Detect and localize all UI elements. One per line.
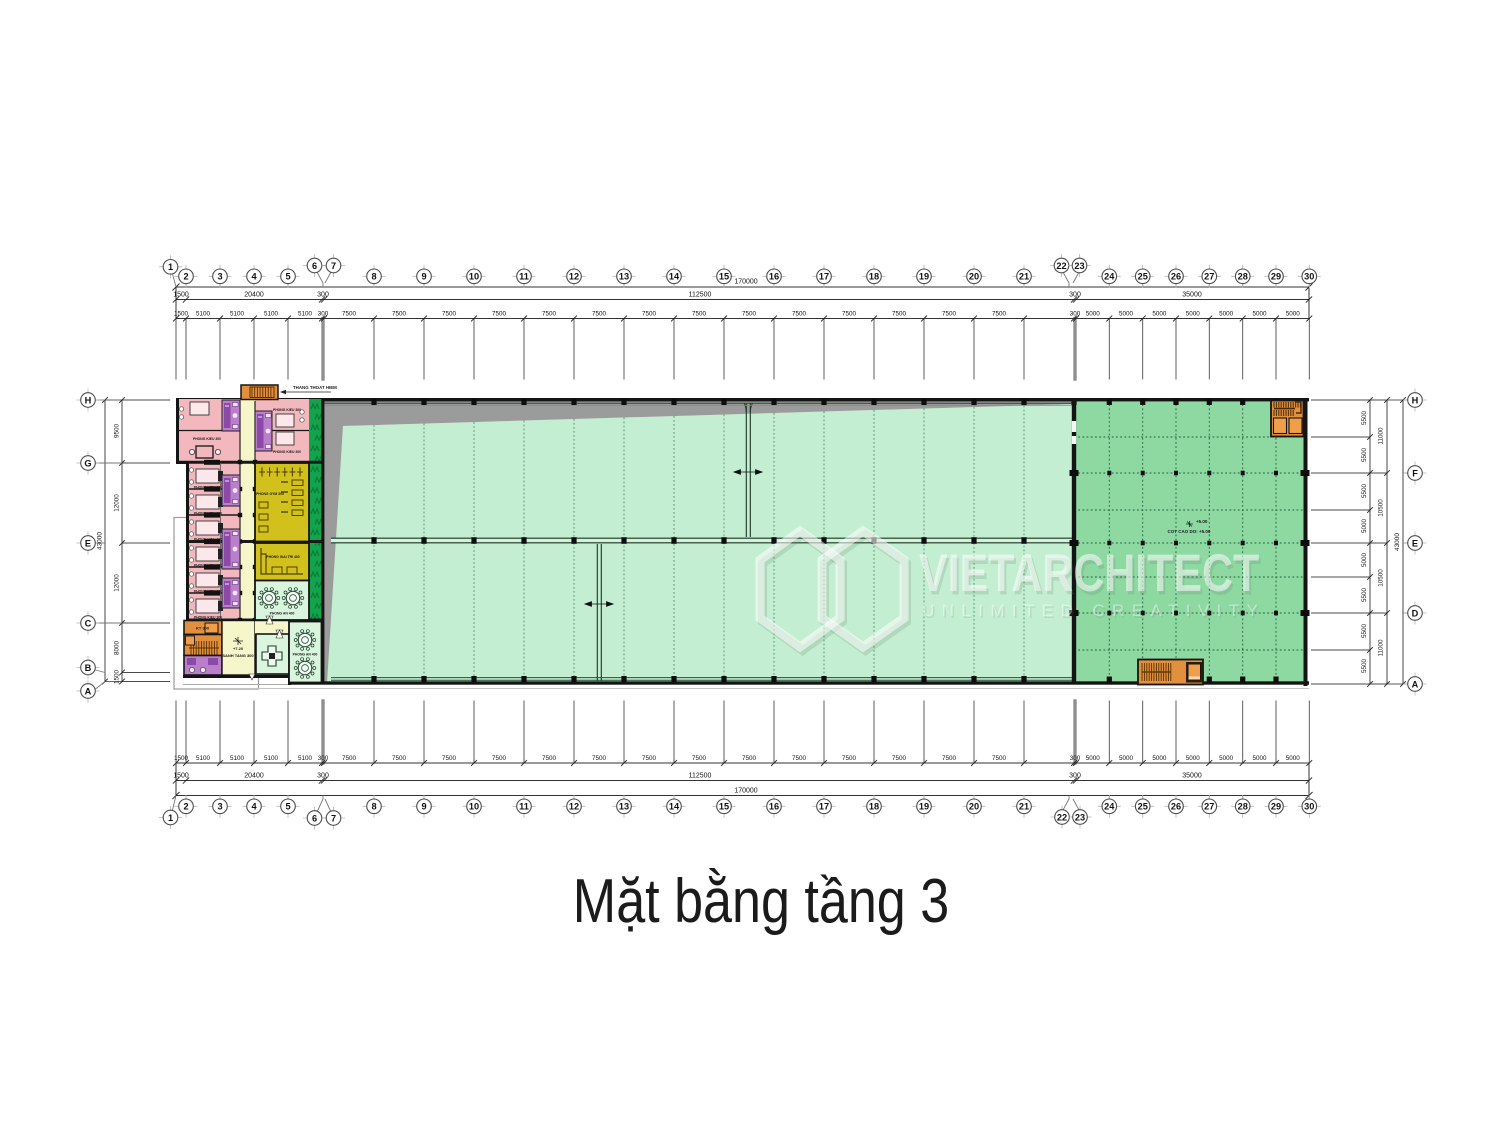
svg-text:5500: 5500	[1361, 448, 1368, 463]
svg-text:G: G	[84, 458, 91, 468]
svg-text:14: 14	[669, 802, 680, 812]
svg-text:12000: 12000	[114, 494, 121, 512]
svg-text:15: 15	[719, 802, 729, 812]
svg-text:1500: 1500	[174, 311, 189, 318]
svg-text:112500: 112500	[689, 292, 712, 299]
svg-text:5000: 5000	[1152, 755, 1167, 762]
svg-text:1500: 1500	[173, 292, 189, 299]
svg-text:24: 24	[1104, 802, 1115, 812]
svg-text:5000: 5000	[1286, 755, 1301, 762]
svg-text:+5.00: +5.00	[1196, 519, 1208, 524]
svg-text:A: A	[85, 686, 92, 696]
svg-text:7500: 7500	[942, 755, 957, 762]
svg-text:22: 22	[1056, 261, 1066, 271]
svg-text:7500: 7500	[492, 755, 507, 762]
svg-text:9500: 9500	[114, 424, 121, 439]
svg-text:7500: 7500	[592, 755, 607, 762]
svg-text:17: 17	[819, 802, 829, 812]
svg-text:COT CAO DO: +5.00: COT CAO DO: +5.00	[1168, 529, 1211, 534]
svg-text:43000: 43000	[1394, 533, 1401, 551]
svg-text:7500: 7500	[942, 311, 957, 318]
svg-text:26: 26	[1171, 802, 1181, 812]
svg-text:24: 24	[1104, 272, 1115, 282]
svg-text:26: 26	[1171, 272, 1181, 282]
svg-text:5500: 5500	[1361, 588, 1368, 603]
svg-text:PHONG KIEU 300: PHONG KIEU 300	[194, 486, 222, 490]
svg-text:5000: 5000	[1219, 755, 1234, 762]
svg-text:13: 13	[619, 272, 629, 282]
svg-text:5100: 5100	[196, 311, 211, 318]
svg-text:27: 27	[1204, 802, 1214, 812]
svg-text:7500: 7500	[542, 755, 557, 762]
svg-text:10: 10	[469, 272, 479, 282]
svg-text:1: 1	[168, 813, 173, 823]
svg-text:20400: 20400	[244, 292, 264, 299]
svg-text:E: E	[85, 538, 91, 548]
svg-text:18: 18	[869, 272, 879, 282]
svg-text:112500: 112500	[689, 773, 712, 780]
svg-text:7: 7	[331, 261, 336, 271]
svg-text:7500: 7500	[992, 755, 1007, 762]
svg-text:300: 300	[317, 773, 329, 780]
svg-text:170000: 170000	[734, 279, 757, 286]
svg-text:25: 25	[1138, 802, 1148, 812]
svg-text:12: 12	[569, 272, 579, 282]
svg-text:C: C	[85, 618, 92, 628]
svg-text:7500: 7500	[692, 311, 707, 318]
svg-text:E: E	[1412, 538, 1418, 548]
svg-text:PHONG KIEU 300: PHONG KIEU 300	[193, 437, 221, 441]
svg-text:PHONG GIAI TRI 400: PHONG GIAI TRI 400	[266, 555, 299, 559]
svg-text:19: 19	[919, 272, 929, 282]
svg-text:B: B	[85, 663, 92, 673]
svg-text:7500: 7500	[592, 311, 607, 318]
svg-text:300: 300	[1070, 311, 1081, 318]
svg-text:43000: 43000	[97, 532, 104, 550]
svg-text:16: 16	[769, 802, 779, 812]
svg-text:2: 2	[183, 272, 188, 282]
svg-text:8: 8	[371, 272, 376, 282]
svg-text:5100: 5100	[298, 755, 313, 762]
svg-text:A: A	[1412, 679, 1419, 689]
svg-text:+7.20: +7.20	[233, 646, 244, 651]
svg-text:7500: 7500	[392, 311, 407, 318]
svg-text:8: 8	[371, 802, 376, 812]
svg-text:7500: 7500	[742, 755, 757, 762]
svg-text:7500: 7500	[692, 755, 707, 762]
svg-text:PHONG GYM 300: PHONG GYM 300	[256, 492, 284, 496]
svg-text:PHONG KIEU 300: PHONG KIEU 300	[194, 590, 222, 594]
svg-text:PHONG KIEU 300: PHONG KIEU 300	[194, 512, 222, 516]
svg-text:27: 27	[1204, 272, 1214, 282]
svg-text:PHONG KIEU 300: PHONG KIEU 300	[194, 538, 222, 542]
svg-text:F: F	[1412, 468, 1418, 478]
svg-text:7500: 7500	[642, 311, 657, 318]
svg-text:2: 2	[183, 802, 188, 812]
svg-text:300: 300	[318, 311, 329, 318]
svg-text:5000: 5000	[1252, 311, 1267, 318]
svg-text:5500: 5500	[1361, 411, 1368, 426]
svg-text:25: 25	[1138, 272, 1148, 282]
svg-text:H: H	[1412, 395, 1419, 405]
svg-text:6: 6	[312, 261, 317, 271]
svg-text:7500: 7500	[392, 755, 407, 762]
svg-text:35000: 35000	[1182, 773, 1202, 780]
svg-text:PHONG KIEU 300: PHONG KIEU 300	[273, 450, 301, 454]
svg-text:28: 28	[1238, 272, 1248, 282]
svg-text:20: 20	[969, 802, 979, 812]
svg-text:8000: 8000	[114, 641, 121, 656]
svg-text:10500: 10500	[1378, 569, 1385, 587]
svg-text:22: 22	[1057, 812, 1067, 822]
svg-text:7500: 7500	[792, 755, 807, 762]
svg-text:7500: 7500	[842, 755, 857, 762]
svg-text:10500: 10500	[1378, 499, 1385, 517]
svg-text:11000: 11000	[1378, 427, 1385, 445]
svg-text:5000: 5000	[1219, 311, 1234, 318]
svg-text:KT 300: KT 300	[196, 626, 210, 631]
svg-text:7500: 7500	[892, 755, 907, 762]
svg-text:300: 300	[1069, 292, 1081, 299]
svg-text:5000: 5000	[1086, 311, 1101, 318]
svg-text:12000: 12000	[114, 574, 121, 592]
svg-text:300: 300	[1069, 773, 1081, 780]
svg-text:4: 4	[251, 802, 257, 812]
svg-text:29: 29	[1271, 272, 1281, 282]
svg-text:23: 23	[1075, 812, 1085, 822]
svg-text:23: 23	[1074, 261, 1084, 271]
svg-text:5100: 5100	[264, 755, 279, 762]
svg-text:12: 12	[569, 802, 579, 812]
svg-text:5000: 5000	[1361, 553, 1368, 568]
svg-text:5000: 5000	[1361, 519, 1368, 534]
svg-text:5: 5	[285, 802, 290, 812]
svg-text:1500: 1500	[174, 755, 189, 762]
svg-text:5000: 5000	[1252, 755, 1267, 762]
svg-text:170000: 170000	[734, 788, 757, 795]
svg-text:5000: 5000	[1186, 311, 1201, 318]
svg-text:9: 9	[421, 802, 426, 812]
svg-text:PHONG KIEU 300: PHONG KIEU 300	[194, 616, 222, 620]
svg-text:21: 21	[1019, 272, 1029, 282]
svg-text:5100: 5100	[230, 755, 245, 762]
svg-text:13: 13	[619, 802, 629, 812]
svg-text:7500: 7500	[892, 311, 907, 318]
svg-text:PHONG KIEU 300: PHONG KIEU 300	[194, 564, 222, 568]
svg-text:4: 4	[251, 272, 257, 282]
svg-text:5000: 5000	[1286, 311, 1301, 318]
svg-text:11: 11	[519, 802, 529, 812]
svg-text:11: 11	[519, 272, 529, 282]
svg-text:5000: 5000	[1119, 311, 1134, 318]
svg-text:5000: 5000	[1152, 311, 1167, 318]
svg-text:1: 1	[168, 262, 173, 272]
svg-text:PHONG KIEU 300: PHONG KIEU 300	[273, 408, 301, 412]
svg-text:5: 5	[285, 272, 290, 282]
svg-text:THANG THOAT HIEM: THANG THOAT HIEM	[293, 385, 337, 390]
svg-text:30: 30	[1304, 272, 1314, 282]
svg-text:19: 19	[919, 802, 929, 812]
svg-text:PHONG AN 400: PHONG AN 400	[270, 612, 295, 616]
svg-text:300: 300	[317, 292, 329, 299]
svg-text:30: 30	[1304, 802, 1314, 812]
svg-text:7500: 7500	[342, 311, 357, 318]
svg-text:7: 7	[331, 813, 336, 823]
svg-text:5500: 5500	[1361, 659, 1368, 674]
svg-text:5100: 5100	[298, 311, 313, 318]
svg-text:6: 6	[312, 813, 317, 823]
svg-text:D: D	[1412, 608, 1419, 618]
svg-text:29: 29	[1271, 802, 1281, 812]
svg-text:5000: 5000	[1119, 755, 1134, 762]
svg-text:300: 300	[318, 755, 329, 762]
svg-text:3: 3	[217, 802, 222, 812]
svg-text:5100: 5100	[230, 311, 245, 318]
svg-text:17: 17	[819, 272, 829, 282]
svg-text:7500: 7500	[642, 755, 657, 762]
svg-text:5100: 5100	[196, 755, 211, 762]
svg-text:7500: 7500	[542, 311, 557, 318]
svg-text:5500: 5500	[1361, 484, 1368, 499]
svg-text:7500: 7500	[842, 311, 857, 318]
svg-text:7500: 7500	[492, 311, 507, 318]
svg-text:Mặt bằng tầng 3: Mặt bằng tầng 3	[573, 867, 949, 936]
svg-text:5000: 5000	[1086, 755, 1101, 762]
svg-text:7500: 7500	[442, 311, 457, 318]
svg-text:5500: 5500	[1361, 624, 1368, 639]
svg-text:20400: 20400	[244, 773, 264, 780]
svg-text:11000: 11000	[1378, 639, 1385, 657]
svg-text:7500: 7500	[742, 311, 757, 318]
svg-text:18: 18	[869, 802, 879, 812]
svg-text:3: 3	[217, 272, 222, 282]
svg-text:300: 300	[1070, 755, 1081, 762]
svg-text:7500: 7500	[992, 311, 1007, 318]
svg-text:H: H	[85, 395, 92, 405]
svg-text:15: 15	[719, 272, 729, 282]
svg-text:16: 16	[769, 272, 779, 282]
svg-text:10: 10	[469, 802, 479, 812]
svg-text:9: 9	[421, 272, 426, 282]
svg-text:UNLIMITED CREATIVITY: UNLIMITED CREATIVITY	[922, 601, 1265, 620]
svg-text:21: 21	[1019, 802, 1029, 812]
svg-text:14: 14	[669, 272, 680, 282]
svg-text:SANH TANG 300: SANH TANG 300	[222, 653, 254, 658]
svg-text:VIETARCHITECT: VIETARCHITECT	[919, 544, 1259, 603]
svg-text:PHONG AN 400: PHONG AN 400	[293, 653, 318, 657]
svg-text:5100: 5100	[264, 311, 279, 318]
svg-text:28: 28	[1238, 802, 1248, 812]
svg-text:5000: 5000	[1186, 755, 1201, 762]
svg-text:35000: 35000	[1182, 292, 1202, 299]
svg-text:7500: 7500	[792, 311, 807, 318]
svg-text:7500: 7500	[442, 755, 457, 762]
svg-text:20: 20	[969, 272, 979, 282]
svg-text:7500: 7500	[342, 755, 357, 762]
